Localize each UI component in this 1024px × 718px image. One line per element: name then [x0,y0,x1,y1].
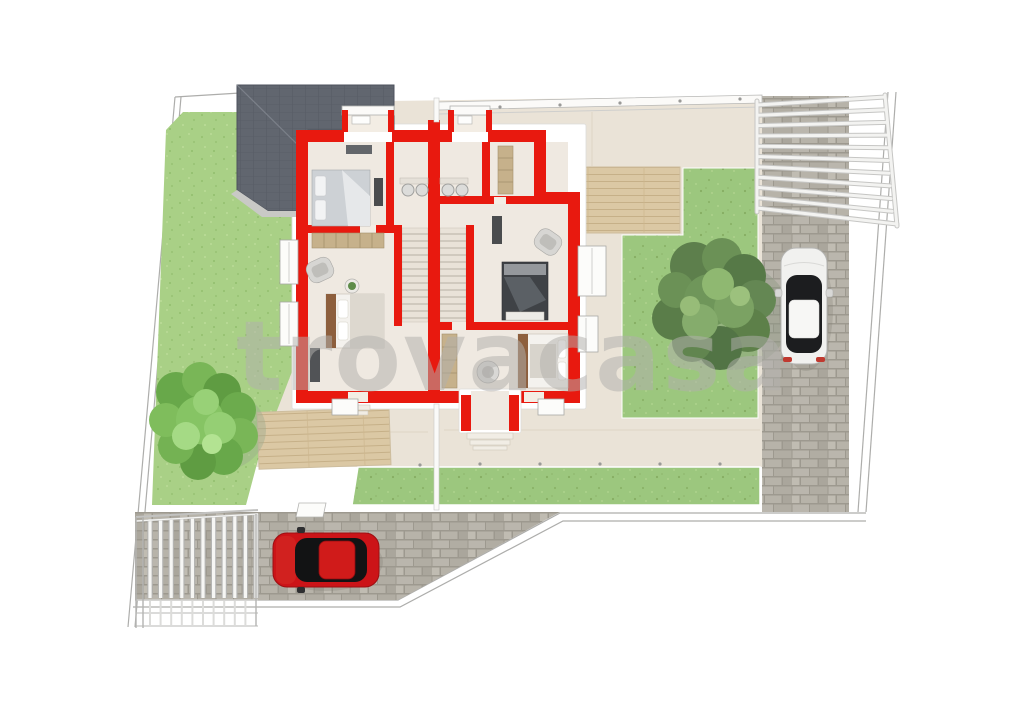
wardrobe-left [312,233,384,248]
curb-step [296,503,326,517]
wardrobe-panel-dark [492,216,502,244]
side-table-plant [345,279,359,293]
cabinet [346,145,372,154]
entrance-steps [467,433,513,450]
balcony-right-unit [448,106,492,132]
car-mirror [297,587,305,593]
left-wood-deck [257,408,391,470]
car-red [269,527,383,593]
car-mirror [297,527,305,533]
watermark-text: trovacasa [236,300,790,413]
bedroom-topleft-bed [312,170,370,226]
balcony-left-unit [342,106,394,132]
bottom-lawn-strip [352,467,760,505]
car-mirror [775,289,782,297]
car-mirror [826,289,833,297]
wardrobe-right-top [498,146,513,194]
tv-panel [374,178,383,206]
taillight [816,357,825,362]
floorplan-render: trovacasa [0,0,1024,718]
